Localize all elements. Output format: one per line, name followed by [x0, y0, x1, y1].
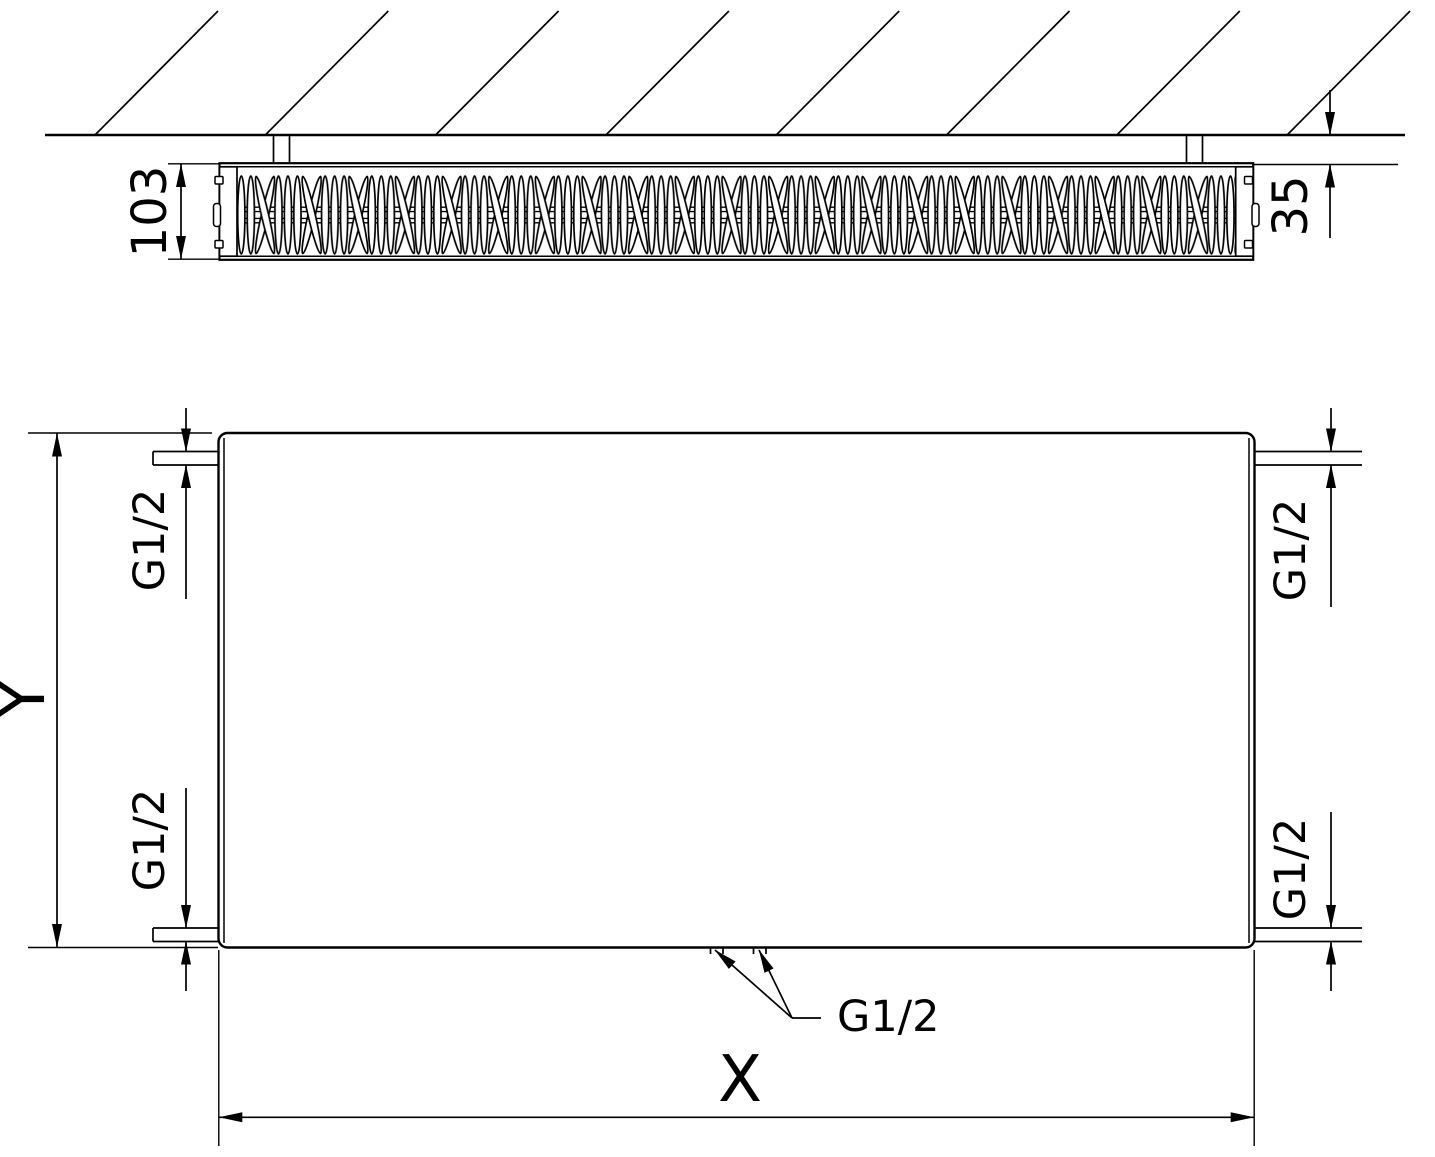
- dimension-depth: 103: [122, 164, 219, 259]
- connection-label: G1/2: [1266, 499, 1316, 602]
- end-cap-left-tab: [214, 204, 221, 227]
- hatch-line: [1287, 11, 1410, 135]
- wall-hatching: [95, 11, 1410, 135]
- hatch-line: [1117, 11, 1240, 135]
- dimension-connection-top-right: G1/2: [1266, 408, 1331, 607]
- connection-stub-bottom-left: [153, 928, 219, 942]
- hatch-line: [606, 11, 729, 135]
- radiator-dimension-drawing: 103 35: [0, 0, 1435, 1157]
- dimension-connection-bottom-right: G1/2: [1266, 812, 1331, 991]
- hatch-line: [776, 11, 899, 135]
- dimension-connection-top-left: G1/2: [125, 408, 186, 599]
- end-cap-left-nub-top: [215, 177, 223, 185]
- radiator-front-panel: [219, 433, 1255, 948]
- leader-bottom-center-connection: G1/2: [715, 950, 940, 1042]
- dimension-connection-bottom-left: G1/2: [125, 788, 186, 991]
- radiator-section-body: [214, 163, 1260, 260]
- front-view: Y X G1/2 G1/2 G1/2 G1/2: [0, 408, 1362, 1146]
- end-cap-right-nub-top: [1245, 177, 1253, 185]
- connection-stub-top-left: [153, 452, 219, 466]
- end-cap-left-nub-bottom: [215, 241, 223, 249]
- end-cap-right-tab: [1252, 204, 1259, 227]
- connection-label: G1/2: [1266, 818, 1316, 921]
- mounting-bracket-right: [1187, 136, 1203, 163]
- top-view: 103 35: [45, 11, 1410, 260]
- hatch-line: [947, 11, 1070, 135]
- width-label: X: [718, 1043, 762, 1117]
- connection-label: G1/2: [125, 489, 175, 592]
- depth-label: 103: [122, 166, 178, 258]
- connection-stub-bottom-right: [1255, 928, 1363, 942]
- dimension-wall-clearance: 35: [1253, 90, 1398, 238]
- dimension-width: X: [219, 950, 1254, 1146]
- mounting-bracket-left: [274, 136, 290, 163]
- hatch-line: [95, 11, 218, 135]
- end-cap-right-nub-bottom: [1245, 241, 1253, 249]
- hatch-line: [265, 11, 388, 135]
- height-label: Y: [0, 679, 60, 720]
- connection-label: G1/2: [837, 992, 940, 1042]
- convector-fins: [237, 175, 1235, 255]
- wall-clearance-label: 35: [1263, 175, 1319, 236]
- connection-label: G1/2: [125, 789, 175, 892]
- connection-stub-top-right: [1255, 452, 1363, 466]
- hatch-line: [436, 11, 559, 135]
